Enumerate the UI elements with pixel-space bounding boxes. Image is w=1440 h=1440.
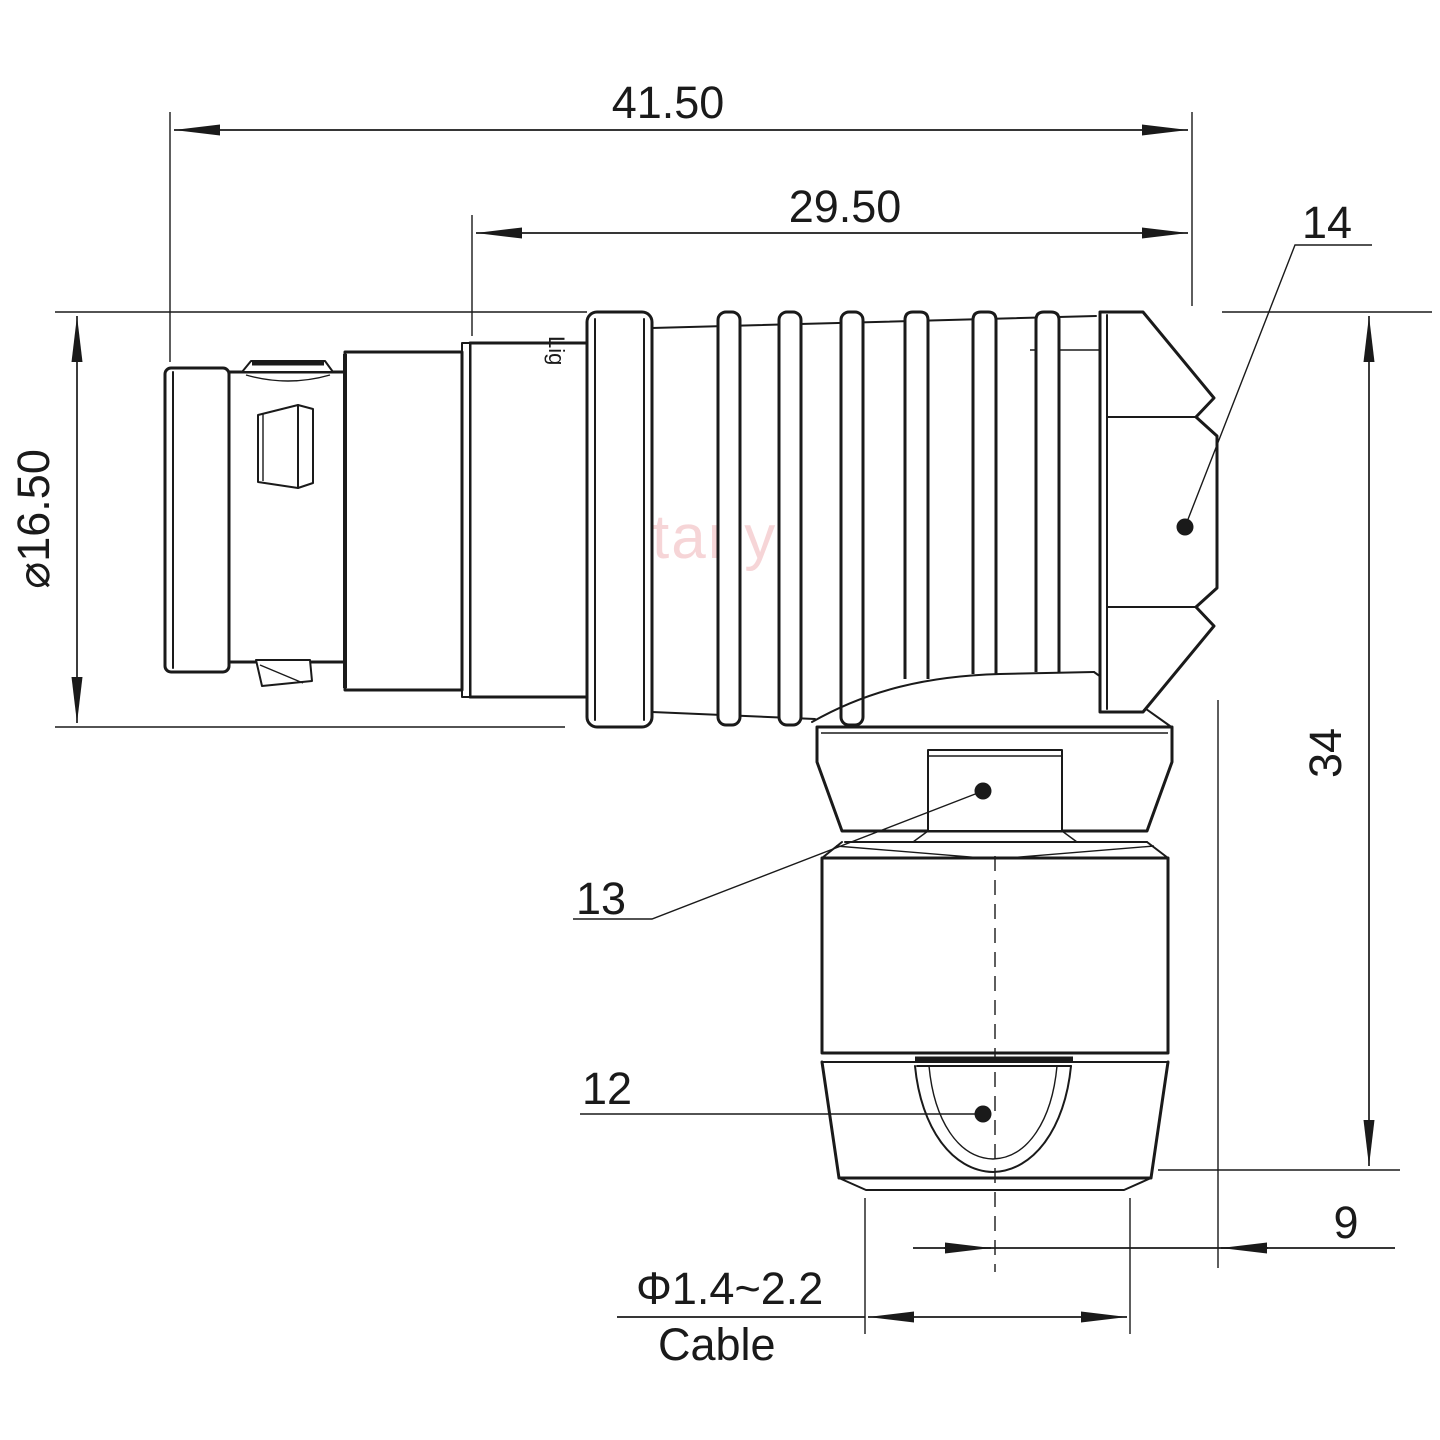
- outer-sleeve-front: [345, 352, 462, 690]
- callout-text-12: 12: [582, 1063, 632, 1114]
- rear-hex-nut: [1100, 312, 1217, 712]
- callout-text-14: 14: [1302, 197, 1352, 248]
- bottom-bayonet-tab: [256, 660, 312, 686]
- elbow-lower-assembly: [812, 672, 1172, 1190]
- grip-rib-4: [905, 312, 928, 679]
- collet-slot-outer-parabola: [915, 1066, 1071, 1172]
- dim-text-front-diameter: ⌀16.50: [8, 449, 59, 589]
- annotation-texts: 41.50 29.50 ⌀16.50 34 9 Φ1.4~2.2 Cable 1…: [8, 77, 1359, 1370]
- dim-text-offset: 9: [1333, 1197, 1358, 1248]
- outer-sleeve-rear: [470, 343, 587, 697]
- leader-dot-13: [975, 783, 992, 800]
- dim-text-height: 34: [1300, 728, 1351, 778]
- flats-corner-left: [913, 831, 928, 842]
- dim-text-cable-word: Cable: [658, 1319, 776, 1370]
- flats-corner-right: [1062, 831, 1077, 842]
- leader-dot-14: [1177, 519, 1194, 536]
- grip-rib-6: [1036, 312, 1059, 672]
- keyway-window: [258, 405, 313, 488]
- callout-text-13: 13: [576, 873, 626, 924]
- extension-lines: [55, 112, 1432, 1334]
- connector-engineering-drawing: Lightany: [0, 0, 1440, 1440]
- rear-collar: [587, 312, 652, 727]
- leader-dot-12: [975, 1106, 992, 1123]
- dim-text-cable-diameter: Φ1.4~2.2: [636, 1263, 823, 1314]
- front-nose-cap: [165, 368, 229, 672]
- technical-drawing-page: Lightany: [0, 0, 1440, 1440]
- grip-rib-2: [779, 312, 801, 725]
- flats-center-face: [928, 750, 1062, 831]
- grip-rib-3: [841, 312, 863, 725]
- dim-text-overall-length: 41.50: [612, 77, 725, 128]
- ribbed-grip-section: [652, 312, 1100, 725]
- grip-rib-5: [973, 312, 996, 674]
- dim-text-body-length: 29.50: [789, 181, 902, 232]
- engraving-text: Lig: [544, 336, 569, 365]
- hex-nut-body: [1100, 312, 1217, 712]
- grip-rib-1: [718, 312, 740, 725]
- washer-edges: [822, 842, 1168, 858]
- collet-slot-inner-parabola: [929, 1066, 1057, 1159]
- front-plug-section: Lig: [165, 312, 652, 727]
